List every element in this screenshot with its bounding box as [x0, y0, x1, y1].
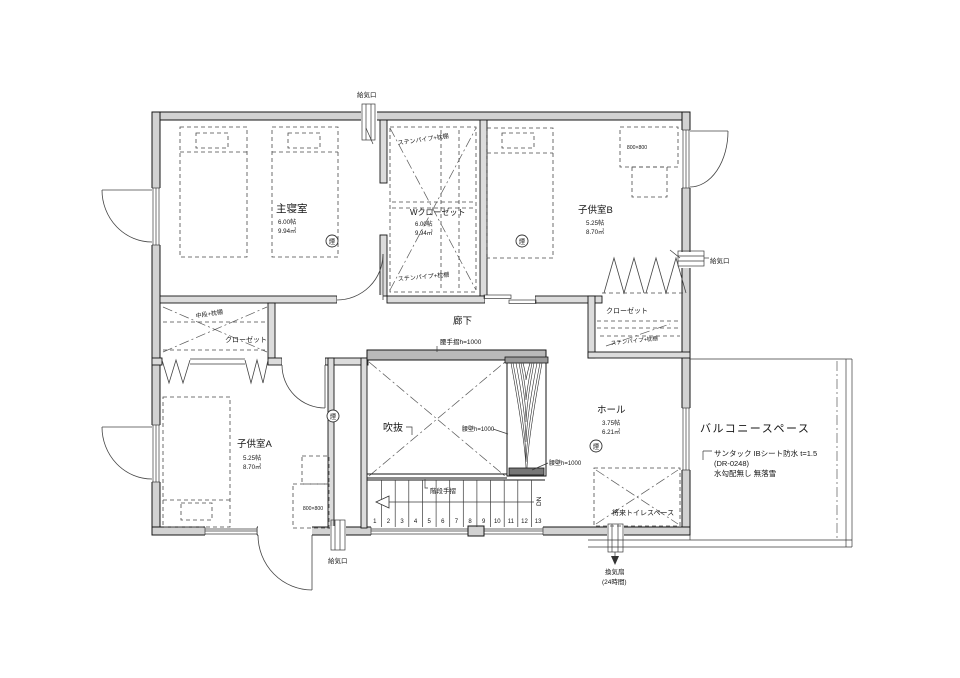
svg-text:6.00帖: 6.00帖: [415, 220, 433, 228]
closet-right-label: クローゼット: [606, 306, 648, 315]
bifold-closet-left-1: [162, 360, 190, 383]
bifold-closet-right-2: [646, 258, 686, 293]
smoke-detector-icon: 煙: [519, 237, 526, 246]
svg-text:8.70㎡: 8.70㎡: [586, 228, 605, 236]
future-toilet-space: 将来トイレスペース: [594, 468, 680, 526]
balcony: バルコニースペース サンタック IBシート防水 t=1.5 (DR-0248) …: [588, 359, 852, 547]
closet-marks: [163, 127, 680, 352]
wall-top: [152, 112, 690, 120]
void-area: [367, 350, 548, 478]
wall-post: [468, 526, 484, 536]
svg-text:5: 5: [428, 519, 432, 525]
void-label: 吹抜: [383, 421, 403, 434]
master-bedroom-label: 主寝室: [276, 202, 308, 215]
future-toilet-label: 将来トイレスペース: [612, 508, 674, 517]
wic-note-top: ステンパイプ+枕棚: [397, 132, 449, 147]
desk-size-b-label: 800×800: [627, 145, 647, 151]
pillow: [288, 133, 320, 148]
stair-dn-label: DN: [536, 496, 543, 506]
balcony-note-2: (DR-0248): [714, 459, 750, 468]
bed-kids-a: [163, 397, 230, 527]
exterior-walls: [152, 112, 690, 535]
svg-text:9.94㎡: 9.94㎡: [278, 227, 297, 235]
casement-arc-left-lower: [102, 427, 152, 479]
smoke-detector-icon: 煙: [330, 412, 337, 421]
svg-text:2: 2: [387, 519, 391, 525]
svg-text:8: 8: [468, 519, 472, 525]
supply-air-right-label: 給気口: [710, 256, 730, 265]
desk-size-a-label: 800×800: [303, 506, 323, 512]
smoke-detector-icon: 煙: [329, 237, 336, 246]
supply-air-top-label: 給気口: [357, 90, 377, 99]
supply-air-bottom-label: 給気口: [328, 556, 348, 565]
door-arc-kids-room-a: [282, 365, 325, 408]
svg-text:7: 7: [455, 519, 459, 525]
svg-text:12: 12: [521, 519, 528, 525]
bifold-closet-right-1: [604, 258, 644, 293]
bed-master-1: [180, 127, 247, 257]
waist-wall-label-2: 腰壁h=1000: [549, 459, 582, 467]
chair-kids-a: [302, 456, 329, 484]
svg-text:6: 6: [441, 519, 445, 525]
pillow: [196, 133, 228, 148]
closet-left-label: クローゼット: [225, 335, 267, 344]
casement-arc-left-upper: [102, 190, 152, 242]
svg-text:10: 10: [494, 519, 501, 525]
corridor-label: 廊下: [453, 315, 472, 327]
svg-text:13: 13: [535, 519, 542, 525]
smoke-detector-icon: 煙: [593, 442, 600, 451]
floor-plan-drawing: 1 2 3 4 5 6 7 8 9 10 11 12 13 DN 階段手摺 将来…: [0, 0, 960, 678]
svg-text:3: 3: [400, 519, 404, 525]
hall-label: ホール: [597, 405, 626, 416]
svg-text:6.00帖: 6.00帖: [278, 218, 296, 226]
pillow: [502, 133, 534, 148]
svg-text:9.94㎡: 9.94㎡: [415, 229, 433, 237]
interior-walls: [152, 120, 690, 528]
waist-handrail-label: 腰手摺h=1000: [440, 337, 482, 346]
svg-text:11: 11: [508, 519, 515, 525]
closet-left-note: 中段+枕棚: [195, 308, 223, 320]
door-arc-bottom: [258, 535, 312, 590]
balcony-label: バルコニースペース: [700, 422, 810, 435]
kids-room-a-label: 子供室A: [237, 438, 273, 450]
svg-text:5.25帖: 5.25帖: [243, 454, 261, 462]
svg-text:9: 9: [482, 519, 486, 525]
svg-text:3.75帖: 3.75帖: [602, 419, 620, 427]
balcony-note-3: 水勾配無し 無落雪: [714, 468, 776, 478]
floor-plan-page: 1 2 3 4 5 6 7 8 9 10 11 12 13 DN 階段手摺 将来…: [0, 0, 960, 678]
exhaust-fan-label: 換気扇: [605, 567, 625, 576]
svg-text:6.21㎡: 6.21㎡: [602, 428, 621, 436]
stairs: 1 2 3 4 5 6 7 8 9 10 11 12 13 DN 階段手摺: [367, 479, 545, 527]
exhaust-arrow: [611, 556, 619, 565]
pillow: [181, 503, 212, 520]
bifold-closet-left-2: [245, 360, 268, 383]
svg-text:1: 1: [373, 519, 377, 525]
svg-text:4: 4: [414, 519, 418, 525]
walkin-closet-label: Wクローゼット: [410, 207, 466, 217]
chair-kids-b: [632, 167, 667, 197]
casement-arc-right: [690, 131, 728, 187]
stair-numbers: 1 2 3 4 5 6 7 8 9 10 11 12 13: [373, 519, 542, 525]
door-arc-master-bedroom: [337, 254, 383, 300]
stair-handrail-label: 階段手摺: [430, 486, 457, 495]
wic-note-bottom: ステンパイプ+枕棚: [397, 271, 449, 283]
svg-text:8.70㎡: 8.70㎡: [243, 463, 262, 471]
svg-text:5.25帖: 5.25帖: [586, 219, 604, 227]
balcony-note-1: サンタック IBシート防水 t=1.5: [714, 448, 817, 458]
furniture: [163, 127, 678, 528]
waist-wall-label-1: 腰壁h=1000: [462, 425, 495, 433]
kids-room-b-label: 子供室B: [578, 204, 613, 216]
exhaust-fan-sub-label: (24時間): [602, 578, 627, 586]
